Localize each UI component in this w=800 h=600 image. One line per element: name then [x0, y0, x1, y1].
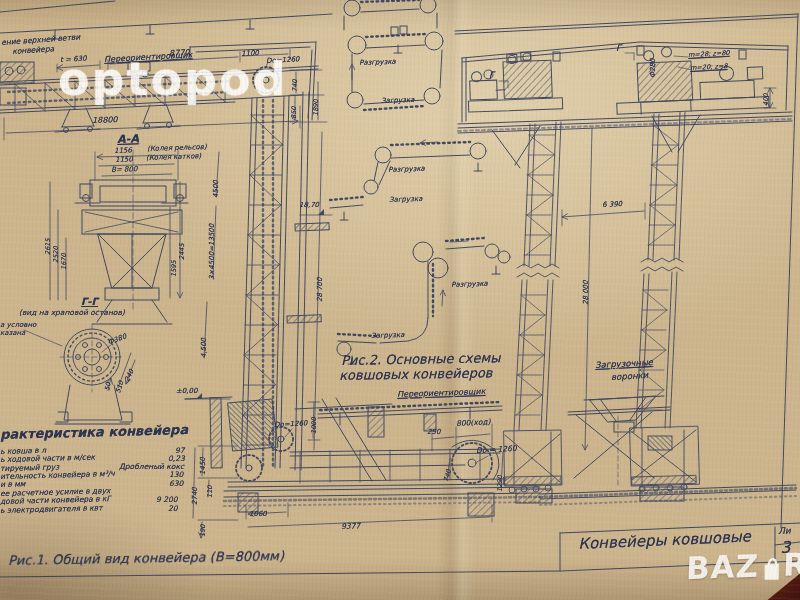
- sprocket-boot-2: [236, 455, 262, 481]
- funnel-label-2: воронки: [611, 371, 648, 381]
- watermark-optopod: optopod: [58, 52, 288, 106]
- dim-1156: 1156: [114, 147, 132, 155]
- dim-28000: 28 000: [583, 281, 590, 306]
- dim-28700: 28 700: [317, 278, 324, 303]
- section-aa-title: А-А: [117, 133, 139, 145]
- dim-1595: 1595: [171, 260, 178, 277]
- titleblock-sheet-label: Ли: [778, 527, 791, 536]
- elev-1870: 18,70: [299, 202, 319, 209]
- elevator-tower-right: [630, 112, 699, 492]
- scheme2-unload: Разгрузка: [388, 166, 425, 174]
- scheme3-load: Загрузка: [371, 332, 405, 340]
- section-gg-title: Г-Г: [81, 297, 98, 307]
- photo-of-drawing: ение верхней ветви конвейера t = 630 Пер…: [0, 0, 800, 600]
- scheme-partial-top: [344, 0, 437, 30]
- fig2-caption-2: ковшовых конвейеров: [339, 366, 493, 382]
- dim-2615: 2615: [45, 238, 52, 255]
- bazar-text-left: BAZ: [685, 548, 759, 587]
- dim-740: 740: [292, 80, 299, 92]
- scheme1-load: Загрузка: [381, 97, 415, 105]
- dim-9377: 9377: [341, 522, 360, 530]
- spec-value: 9 200: [156, 496, 177, 504]
- dim-1890: 1890: [313, 99, 320, 116]
- dim-1450: 1450: [200, 457, 207, 475]
- dim-6390: 6 390: [602, 201, 622, 209]
- spec-value: 20: [168, 505, 178, 513]
- dim-50: 50: [104, 382, 112, 391]
- scheme1-unload: Разгрузка: [359, 59, 396, 67]
- dim-2445: 2445: [179, 243, 186, 260]
- dim-400: 400: [763, 94, 770, 106]
- dim-1000: 1000: [311, 417, 318, 434]
- dim-dia280: Ф280: [650, 59, 657, 78]
- gg-note-2: казана: [0, 330, 25, 337]
- sheet-edge-top-left: [0, 1, 115, 12]
- scheme2-load: Загрузка: [389, 196, 423, 204]
- dim-850: 850: [291, 107, 298, 119]
- dim-250: 250: [427, 429, 440, 436]
- dim-1670: 1670: [61, 253, 68, 270]
- elev-000: ±0,00: [176, 388, 197, 395]
- scheme3-unload: Разгрузка: [451, 281, 488, 289]
- dim-2520: 2520: [53, 246, 60, 263]
- scheme-2: [330, 142, 486, 220]
- spec-label: и в мм: [0, 480, 26, 488]
- gear-spec-2: m=20; z=8: [690, 63, 728, 71]
- dim-1290: 1290: [497, 475, 504, 492]
- spec-value: 630: [169, 480, 183, 488]
- scheme-3: [337, 238, 510, 364]
- section-mark-right: Г: [616, 44, 622, 53]
- dim-13500: 3×4500=13500: [209, 224, 216, 280]
- dim-18800: 18800: [92, 116, 118, 125]
- dim-2740: 2740: [192, 487, 199, 505]
- elevator-tower-left: [504, 122, 562, 493]
- spec-value: 130: [169, 471, 183, 479]
- dim-4500b: 4,500: [201, 338, 208, 358]
- section-mark-left: Г: [489, 71, 495, 80]
- watermark-bazar: BAZ R: [685, 546, 800, 586]
- dim-800-hod: 800(ход): [456, 418, 491, 427]
- dim-1060: 1060: [249, 511, 267, 518]
- dim-190: 190: [200, 525, 207, 537]
- shopping-bag-icon: [760, 555, 783, 583]
- dim-b800: В= 800: [111, 166, 137, 174]
- gg-note-1: а условно: [0, 322, 36, 329]
- dim-do1260-right: Dо = 1260: [476, 445, 517, 455]
- section-gg-subtitle: (вид на храповой останов): [19, 309, 125, 317]
- dim-1150: 1150: [115, 156, 133, 164]
- dim-4500: 4500: [213, 180, 220, 198]
- dim-110: 110: [207, 486, 214, 498]
